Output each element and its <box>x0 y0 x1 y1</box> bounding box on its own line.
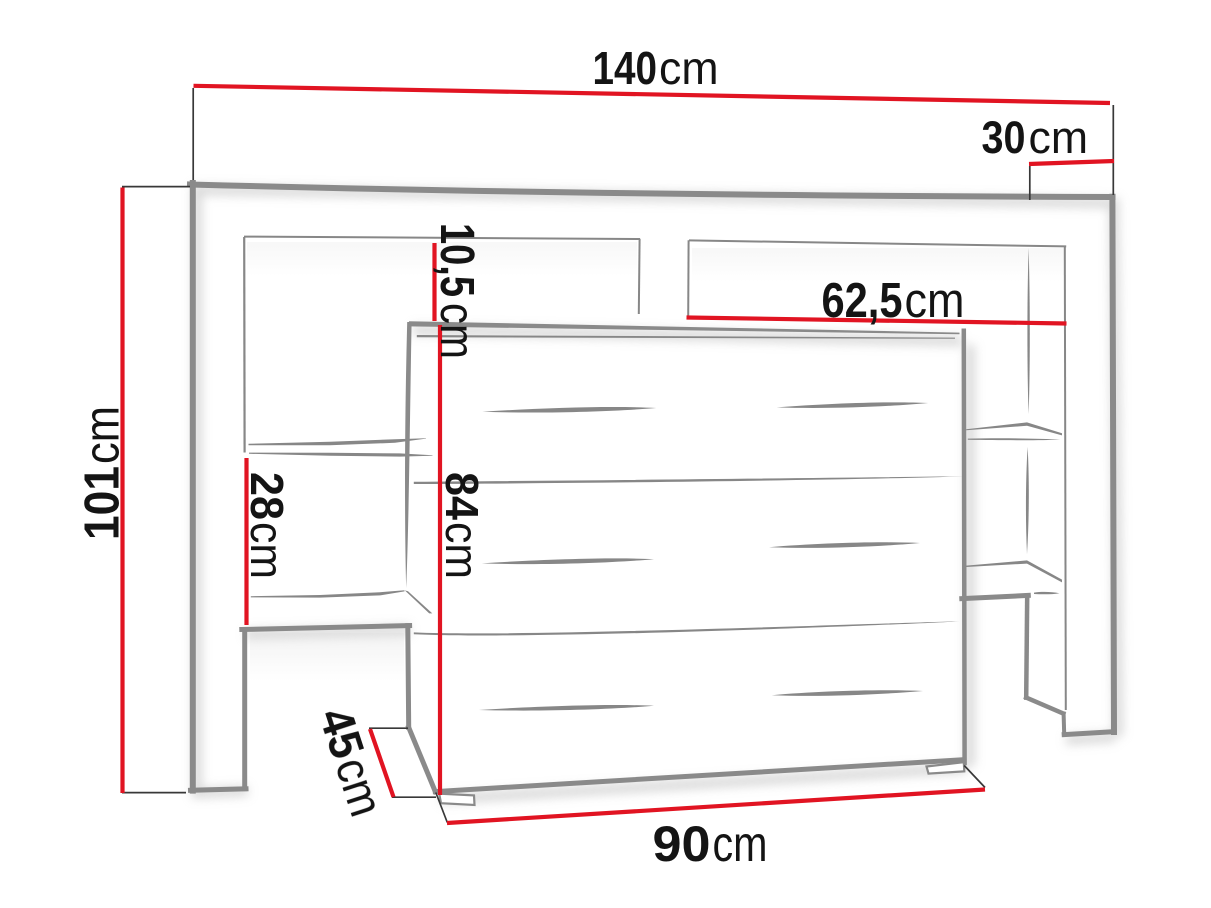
svg-text:cm: cm <box>905 274 965 328</box>
svg-text:cm: cm <box>430 303 483 359</box>
svg-text:90: 90 <box>653 816 711 872</box>
svg-text:62,5: 62,5 <box>822 274 903 328</box>
svg-text:30: 30 <box>982 112 1026 163</box>
svg-text:84: 84 <box>436 472 488 520</box>
svg-text:cm: cm <box>436 522 488 579</box>
svg-text:10,5: 10,5 <box>430 223 483 297</box>
svg-text:cm: cm <box>76 406 130 464</box>
svg-text:cm: cm <box>659 42 719 94</box>
svg-text:140: 140 <box>593 42 658 94</box>
svg-text:cm: cm <box>1029 112 1089 163</box>
svg-text:28: 28 <box>241 472 293 520</box>
svg-text:101: 101 <box>76 466 130 540</box>
svg-text:cm: cm <box>241 522 293 579</box>
svg-text:cm: cm <box>713 816 768 872</box>
